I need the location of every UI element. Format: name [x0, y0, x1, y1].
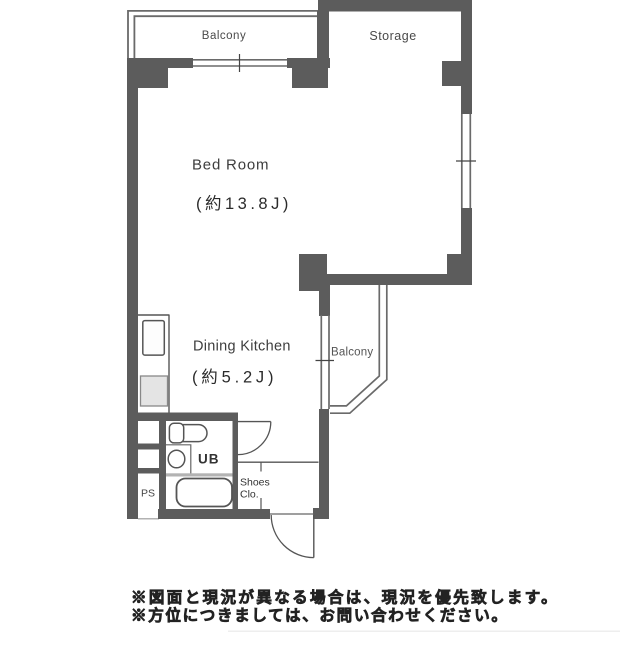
- svg-text:Bed Room: Bed Room: [192, 157, 269, 174]
- svg-text:Balcony: Balcony: [331, 347, 373, 359]
- svg-text:Balcony: Balcony: [202, 30, 246, 42]
- svg-text:UB: UB: [198, 452, 220, 467]
- svg-text:Storage: Storage: [369, 29, 416, 43]
- svg-text:(約5.2J): (約5.2J): [192, 368, 277, 387]
- svg-text:Clo.: Clo.: [240, 489, 259, 501]
- svg-text:※方位につきましては、お問い合わせください。: ※方位につきましては、お問い合わせください。: [131, 606, 509, 625]
- svg-text:(約13.8J): (約13.8J): [196, 194, 292, 213]
- svg-text:PS: PS: [141, 488, 155, 500]
- svg-text:Shoes: Shoes: [240, 477, 270, 489]
- svg-text:※図面と現況が異なる場合は、現況を優先致します。: ※図面と現況が異なる場合は、現況を優先致します。: [131, 588, 559, 607]
- svg-text:Dining Kitchen: Dining Kitchen: [193, 339, 291, 355]
